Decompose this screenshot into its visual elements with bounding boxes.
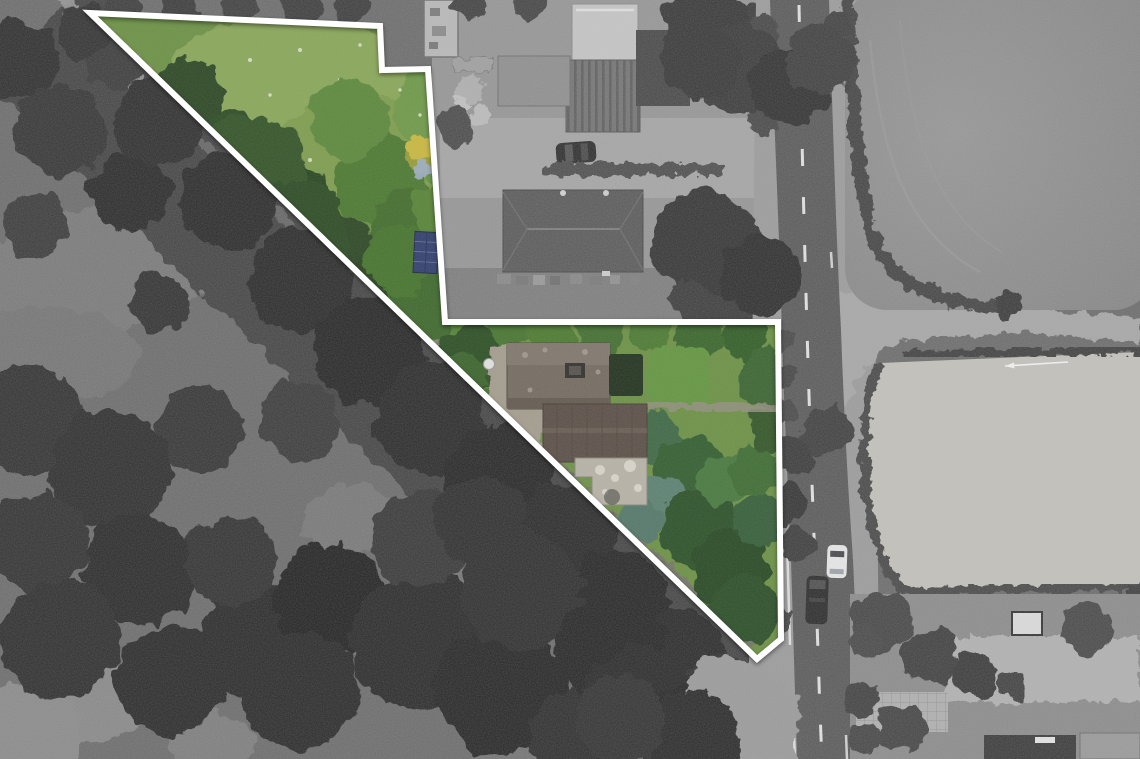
aerial-photo: [0, 0, 1140, 759]
aerial-photo-stage: [0, 0, 1140, 759]
